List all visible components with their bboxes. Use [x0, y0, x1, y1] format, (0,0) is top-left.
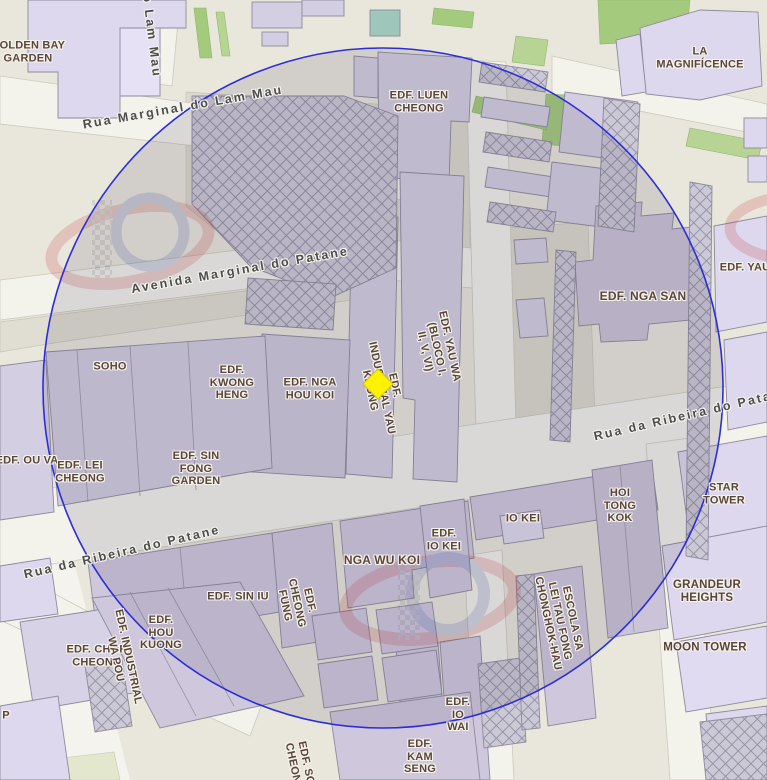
map-canvas[interactable]: Rua Marginal do Lam Mauo Lam MauAvenida … [0, 0, 767, 780]
